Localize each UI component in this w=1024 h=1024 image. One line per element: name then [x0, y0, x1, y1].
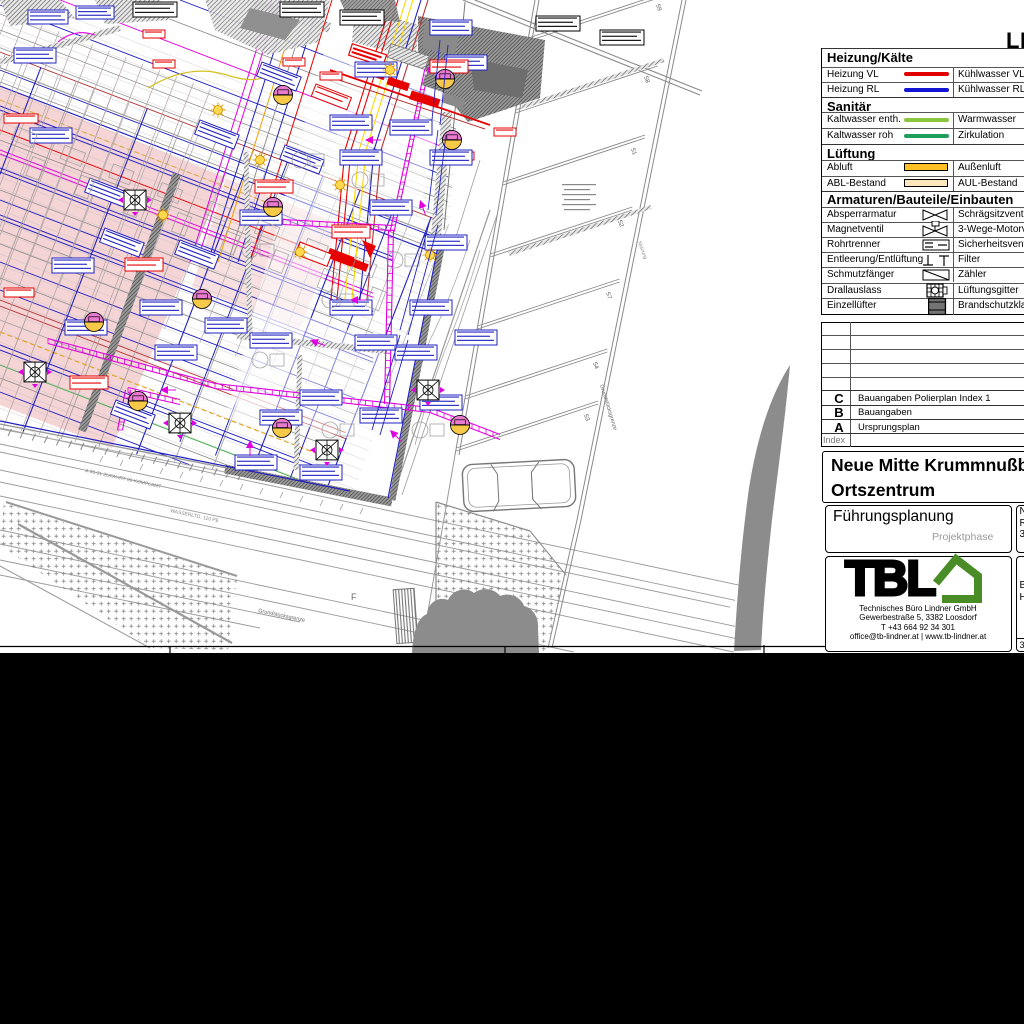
svg-text:52: 52 [616, 220, 624, 229]
svg-text:58: 58 [642, 76, 650, 85]
svg-text:53: 53 [582, 414, 590, 423]
svg-text:A 30.31 ZUFAHRT 06 KOMPLAMT: A 30.31 ZUFAHRT 06 KOMPLAMT [85, 468, 162, 490]
svg-text:54: 54 [591, 362, 599, 371]
svg-text:Grundstücksgrenze: Grundstücksgrenze [258, 608, 306, 624]
svg-text:57: 57 [604, 292, 612, 301]
svg-text:F: F [351, 592, 357, 602]
svg-text:51: 51 [629, 148, 637, 157]
svg-text:WASSERLTG. 110 PE: WASSERLTG. 110 PE [170, 508, 220, 524]
svg-text:Nutzung: Nutzung [636, 241, 648, 261]
svg-text:Grundstücksgrenze: Grundstücksgrenze [598, 384, 618, 431]
svg-text:59: 59 [654, 4, 662, 13]
